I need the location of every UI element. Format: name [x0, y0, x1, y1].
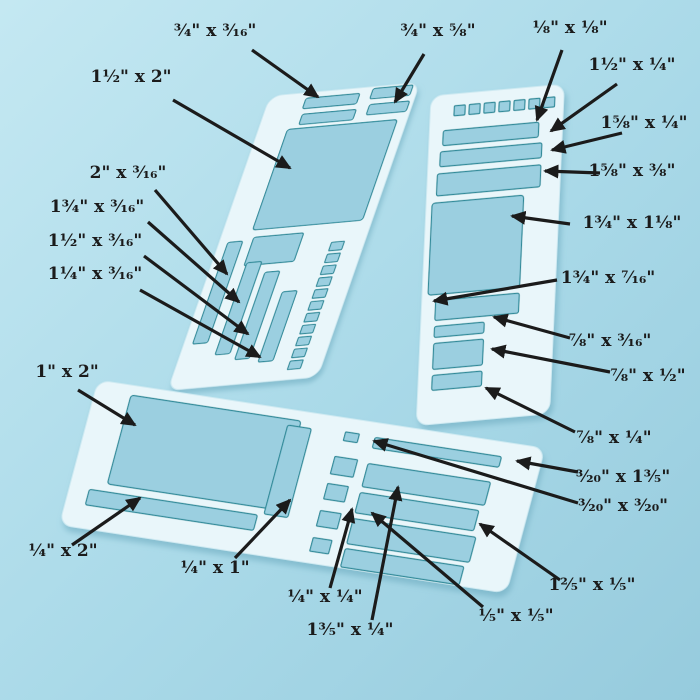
dimension-label: ¹⁄₅" x ¹⁄₅"	[478, 606, 553, 626]
cutout-rect-large	[428, 195, 524, 295]
dimension-label: ⁷⁄₈" x ¹⁄₂"	[610, 366, 685, 386]
dimension-label: 1¹⁄₂" x 2"	[90, 67, 171, 87]
dimension-label: 1¹⁄₂" x ¹⁄₄"	[589, 55, 676, 75]
cutout-square	[514, 100, 525, 111]
dimension-label: ¹⁄₄" x 2"	[28, 541, 97, 561]
dimension-label: ⁷⁄₈" x ³⁄₁₆"	[569, 331, 652, 351]
dimension-label: 1³⁄₄" x ³⁄₁₆"	[50, 197, 144, 217]
dimension-label: 1³⁄₄" x ⁷⁄₁₆"	[561, 268, 655, 288]
dimension-label: ³⁄₄" x ⁵⁄₈"	[400, 21, 475, 41]
dimension-label: 1³⁄₄" x 1¹⁄₈"	[583, 213, 682, 233]
dimension-label: ¹⁄₄" x 1"	[180, 558, 249, 578]
cutout-square	[324, 483, 349, 502]
dimension-label: 1¹⁄₄" x ³⁄₁₆"	[48, 264, 142, 284]
cutout-square	[343, 432, 359, 443]
dimension-label: 1³⁄₅" x ¹⁄₄"	[307, 620, 394, 640]
cutout-square	[499, 101, 510, 112]
dimension-label: 1²⁄₅" x ¹⁄₅"	[549, 575, 636, 595]
dimension-label: ¹⁄₈" x ¹⁄₈"	[532, 18, 607, 38]
cutout-square	[529, 98, 540, 109]
dimension-label: 1⁵⁄₈" x ³⁄₈"	[589, 161, 676, 181]
photo-canvas: ³⁄₄" x ³⁄₁₆" ³⁄₄" x ⁵⁄₈" ¹⁄₈" x ¹⁄₈" 1¹⁄…	[0, 0, 700, 700]
dimension-label: ³⁄₄" x ³⁄₁₆"	[174, 21, 257, 41]
stencil-sheet-right	[416, 84, 564, 426]
dimension-label: ⁷⁄₈" x ¹⁄₄"	[576, 428, 651, 448]
cutout-square	[310, 538, 332, 554]
cutout-square	[316, 510, 341, 529]
dimension-label: ³⁄₂₀" x ³⁄₂₀"	[578, 496, 668, 516]
dimension-label: ¹⁄₄" x ¹⁄₄"	[287, 587, 362, 607]
cutout-square	[454, 105, 465, 116]
dimension-label: 1" x 2"	[35, 362, 98, 382]
cutout-square	[330, 456, 357, 477]
cutout-slot	[433, 339, 484, 369]
dimension-label: ³⁄₂₀" x 1³⁄₅"	[576, 467, 670, 487]
cutout-square	[469, 104, 480, 115]
dimension-label: 2" x ³⁄₁₆"	[90, 163, 167, 183]
dimension-label: 1¹⁄₂" x ³⁄₁₆"	[48, 231, 142, 251]
annotated-stencil-photo: ³⁄₄" x ³⁄₁₆" ³⁄₄" x ⁵⁄₈" ¹⁄₈" x ¹⁄₈" 1¹⁄…	[0, 0, 700, 700]
dimension-label: 1⁵⁄₈" x ¹⁄₄"	[601, 113, 688, 133]
cutout-square	[484, 102, 495, 113]
